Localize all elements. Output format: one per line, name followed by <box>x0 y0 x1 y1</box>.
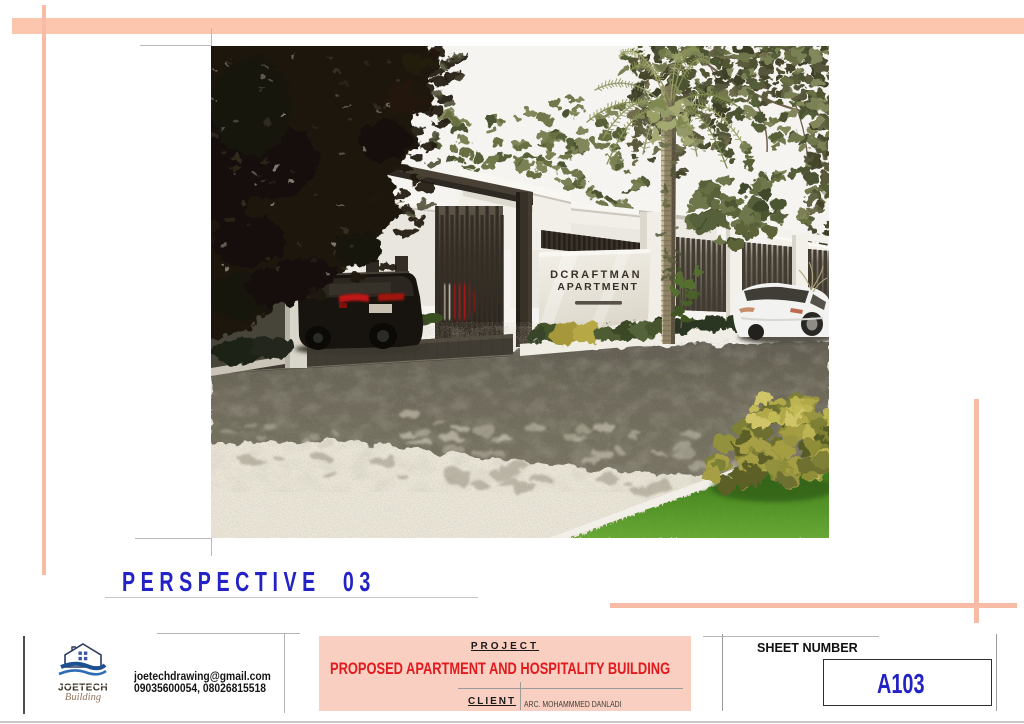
svg-text:APARTMENT: APARTMENT <box>557 281 638 293</box>
svg-text:DCRAFTMAN: DCRAFTMAN <box>550 269 642 281</box>
svg-text:Building: Building <box>65 692 101 703</box>
